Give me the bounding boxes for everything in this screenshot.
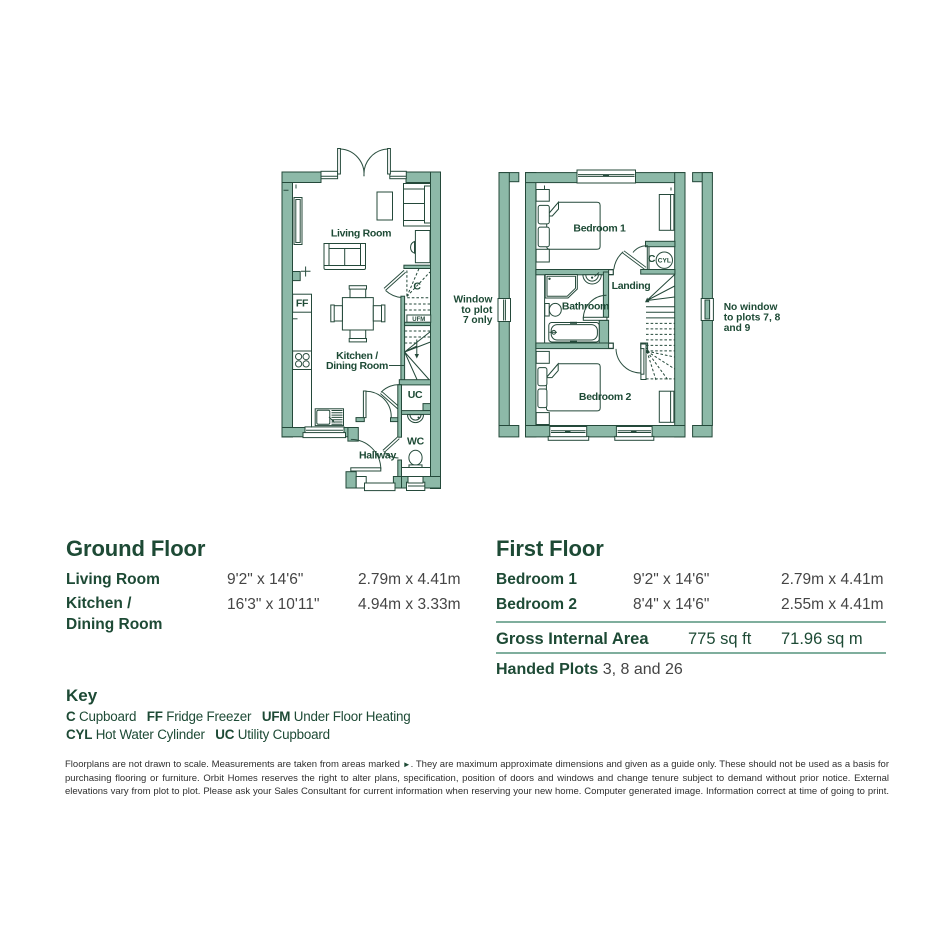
svg-text:7 only: 7 only (463, 315, 493, 326)
svg-text:Landing: Landing (612, 280, 651, 292)
svg-text:Bedroom 1: Bedroom 1 (573, 223, 626, 235)
svg-text:UC: UC (408, 389, 423, 401)
svg-text:Living Room: Living Room (331, 228, 391, 240)
svg-text:to plots 7, 8: to plots 7, 8 (724, 313, 781, 324)
svg-text:C: C (648, 253, 656, 265)
svg-text:and 9: and 9 (724, 323, 751, 334)
svg-text:Dining Room: Dining Room (326, 360, 388, 372)
svg-text:WC: WC (407, 436, 425, 448)
svg-text:Bathroom: Bathroom (562, 301, 609, 313)
svg-text:C: C (413, 281, 421, 293)
svg-text:CYL: CYL (658, 258, 671, 265)
svg-text:FF: FF (296, 298, 309, 310)
svg-text:No window: No window (724, 302, 778, 313)
svg-text:Hallway: Hallway (359, 450, 396, 462)
svg-text:Bedroom 2: Bedroom 2 (579, 391, 632, 403)
